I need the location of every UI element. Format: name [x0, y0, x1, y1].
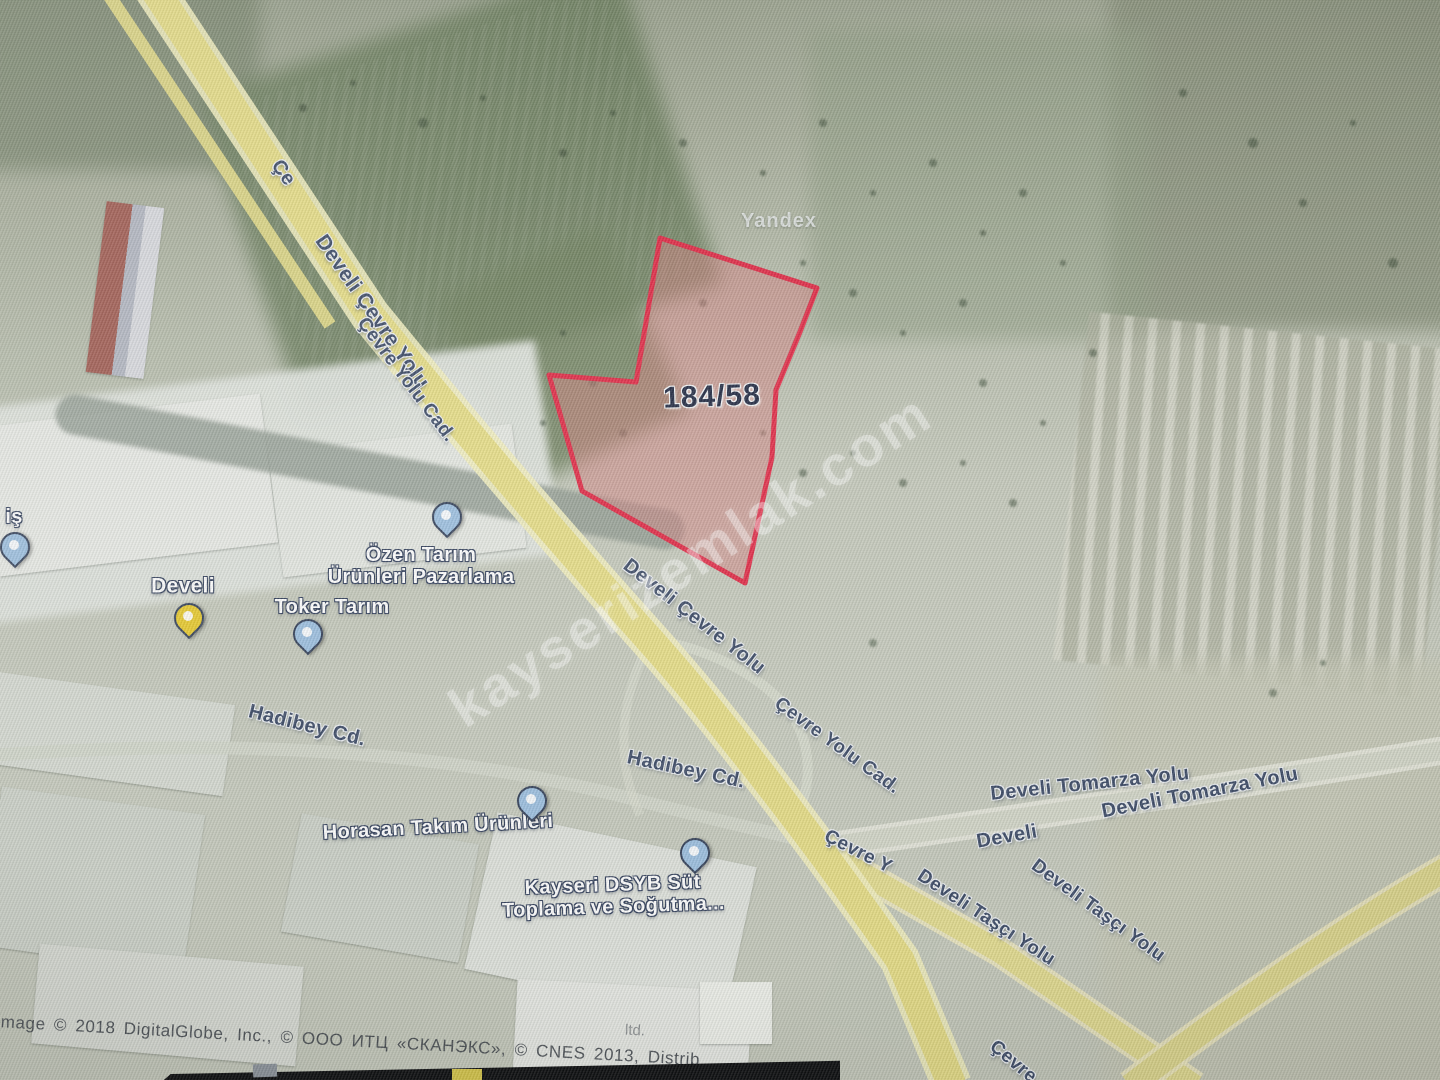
- poi-label: Özen Tarım Ürünleri Pazarlama: [328, 544, 515, 588]
- pin-dot: [9, 540, 19, 550]
- attribution-fragment: ltd.: [625, 1021, 646, 1039]
- pin-dot: [183, 611, 193, 621]
- poi-label: iş: [5, 506, 22, 528]
- map-pin-icon[interactable]: [677, 836, 711, 874]
- map-pin-icon[interactable]: [0, 530, 31, 568]
- road-ramp: [624, 645, 648, 815]
- poi-label: Develi: [151, 574, 215, 597]
- map-pin-icon[interactable]: [290, 617, 324, 655]
- road-corner: [1130, 868, 1440, 1080]
- taskbar-icon: [253, 1064, 277, 1078]
- taskbar-icon: [452, 1069, 482, 1080]
- pin-dot: [526, 794, 536, 804]
- map-pin-icon[interactable]: [171, 601, 205, 639]
- map-pin-icon[interactable]: [429, 500, 463, 538]
- pin-dot: [302, 627, 312, 637]
- pin-dot: [689, 846, 699, 856]
- poi-label: Kayseri DSYB Süt Toplama ve Soğutma...: [501, 870, 725, 922]
- parcel-number-label: 184/58: [663, 378, 762, 415]
- pin-dot: [441, 510, 451, 520]
- map-pin-icon[interactable]: [514, 784, 548, 822]
- yandex-watermark: Yandex: [741, 210, 817, 233]
- poi-label: Toker Tarım: [275, 596, 390, 618]
- map-canvas[interactable]: ÇeDeveli Çevre YoluÇevre Yolu Cad.Develi…: [0, 0, 1440, 1080]
